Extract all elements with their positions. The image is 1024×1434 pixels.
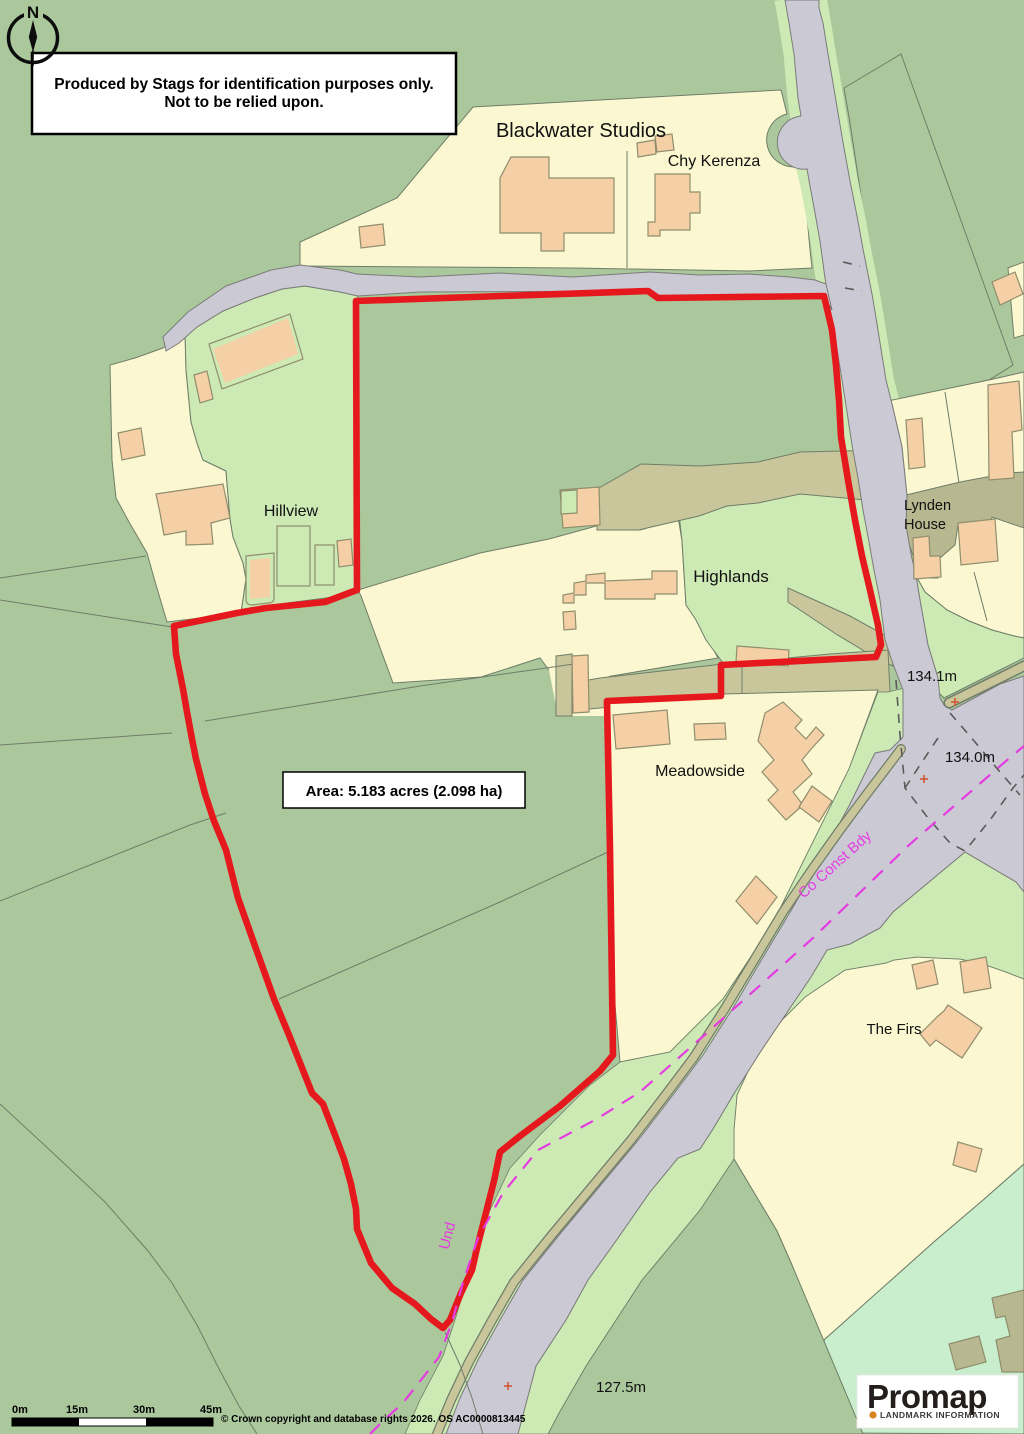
svg-text:134.1m: 134.1m	[907, 668, 957, 685]
svg-text:45m: 45m	[200, 1404, 222, 1416]
svg-text:Hillview: Hillview	[264, 503, 319, 520]
svg-text:House: House	[904, 517, 946, 533]
svg-text:© Crown copyright and database: © Crown copyright and database rights 20…	[221, 1414, 526, 1425]
svg-text:N: N	[27, 3, 39, 22]
svg-text:Highlands: Highlands	[693, 567, 769, 586]
svg-text:Blackwater Studios: Blackwater Studios	[496, 120, 666, 142]
svg-text:Lynden: Lynden	[904, 498, 951, 514]
svg-text:Meadowside: Meadowside	[655, 763, 745, 780]
svg-text:Not to be relied upon.: Not to be relied upon.	[164, 94, 323, 111]
svg-text:0m: 0m	[12, 1404, 28, 1416]
svg-text:30m: 30m	[133, 1404, 155, 1416]
svg-text:Chy Kerenza: Chy Kerenza	[668, 153, 761, 170]
svg-text:127.5m: 127.5m	[596, 1379, 646, 1396]
svg-text:134.0m: 134.0m	[945, 749, 995, 766]
svg-text:15m: 15m	[66, 1404, 88, 1416]
svg-text:Produced by Stags for identifi: Produced by Stags for identification pur…	[54, 76, 434, 93]
svg-text:LANDMARK INFORMATION: LANDMARK INFORMATION	[880, 1410, 1000, 1420]
svg-text:Area: 5.183 acres (2.098 ha): Area: 5.183 acres (2.098 ha)	[306, 783, 503, 800]
svg-text:The Firs: The Firs	[866, 1021, 921, 1038]
